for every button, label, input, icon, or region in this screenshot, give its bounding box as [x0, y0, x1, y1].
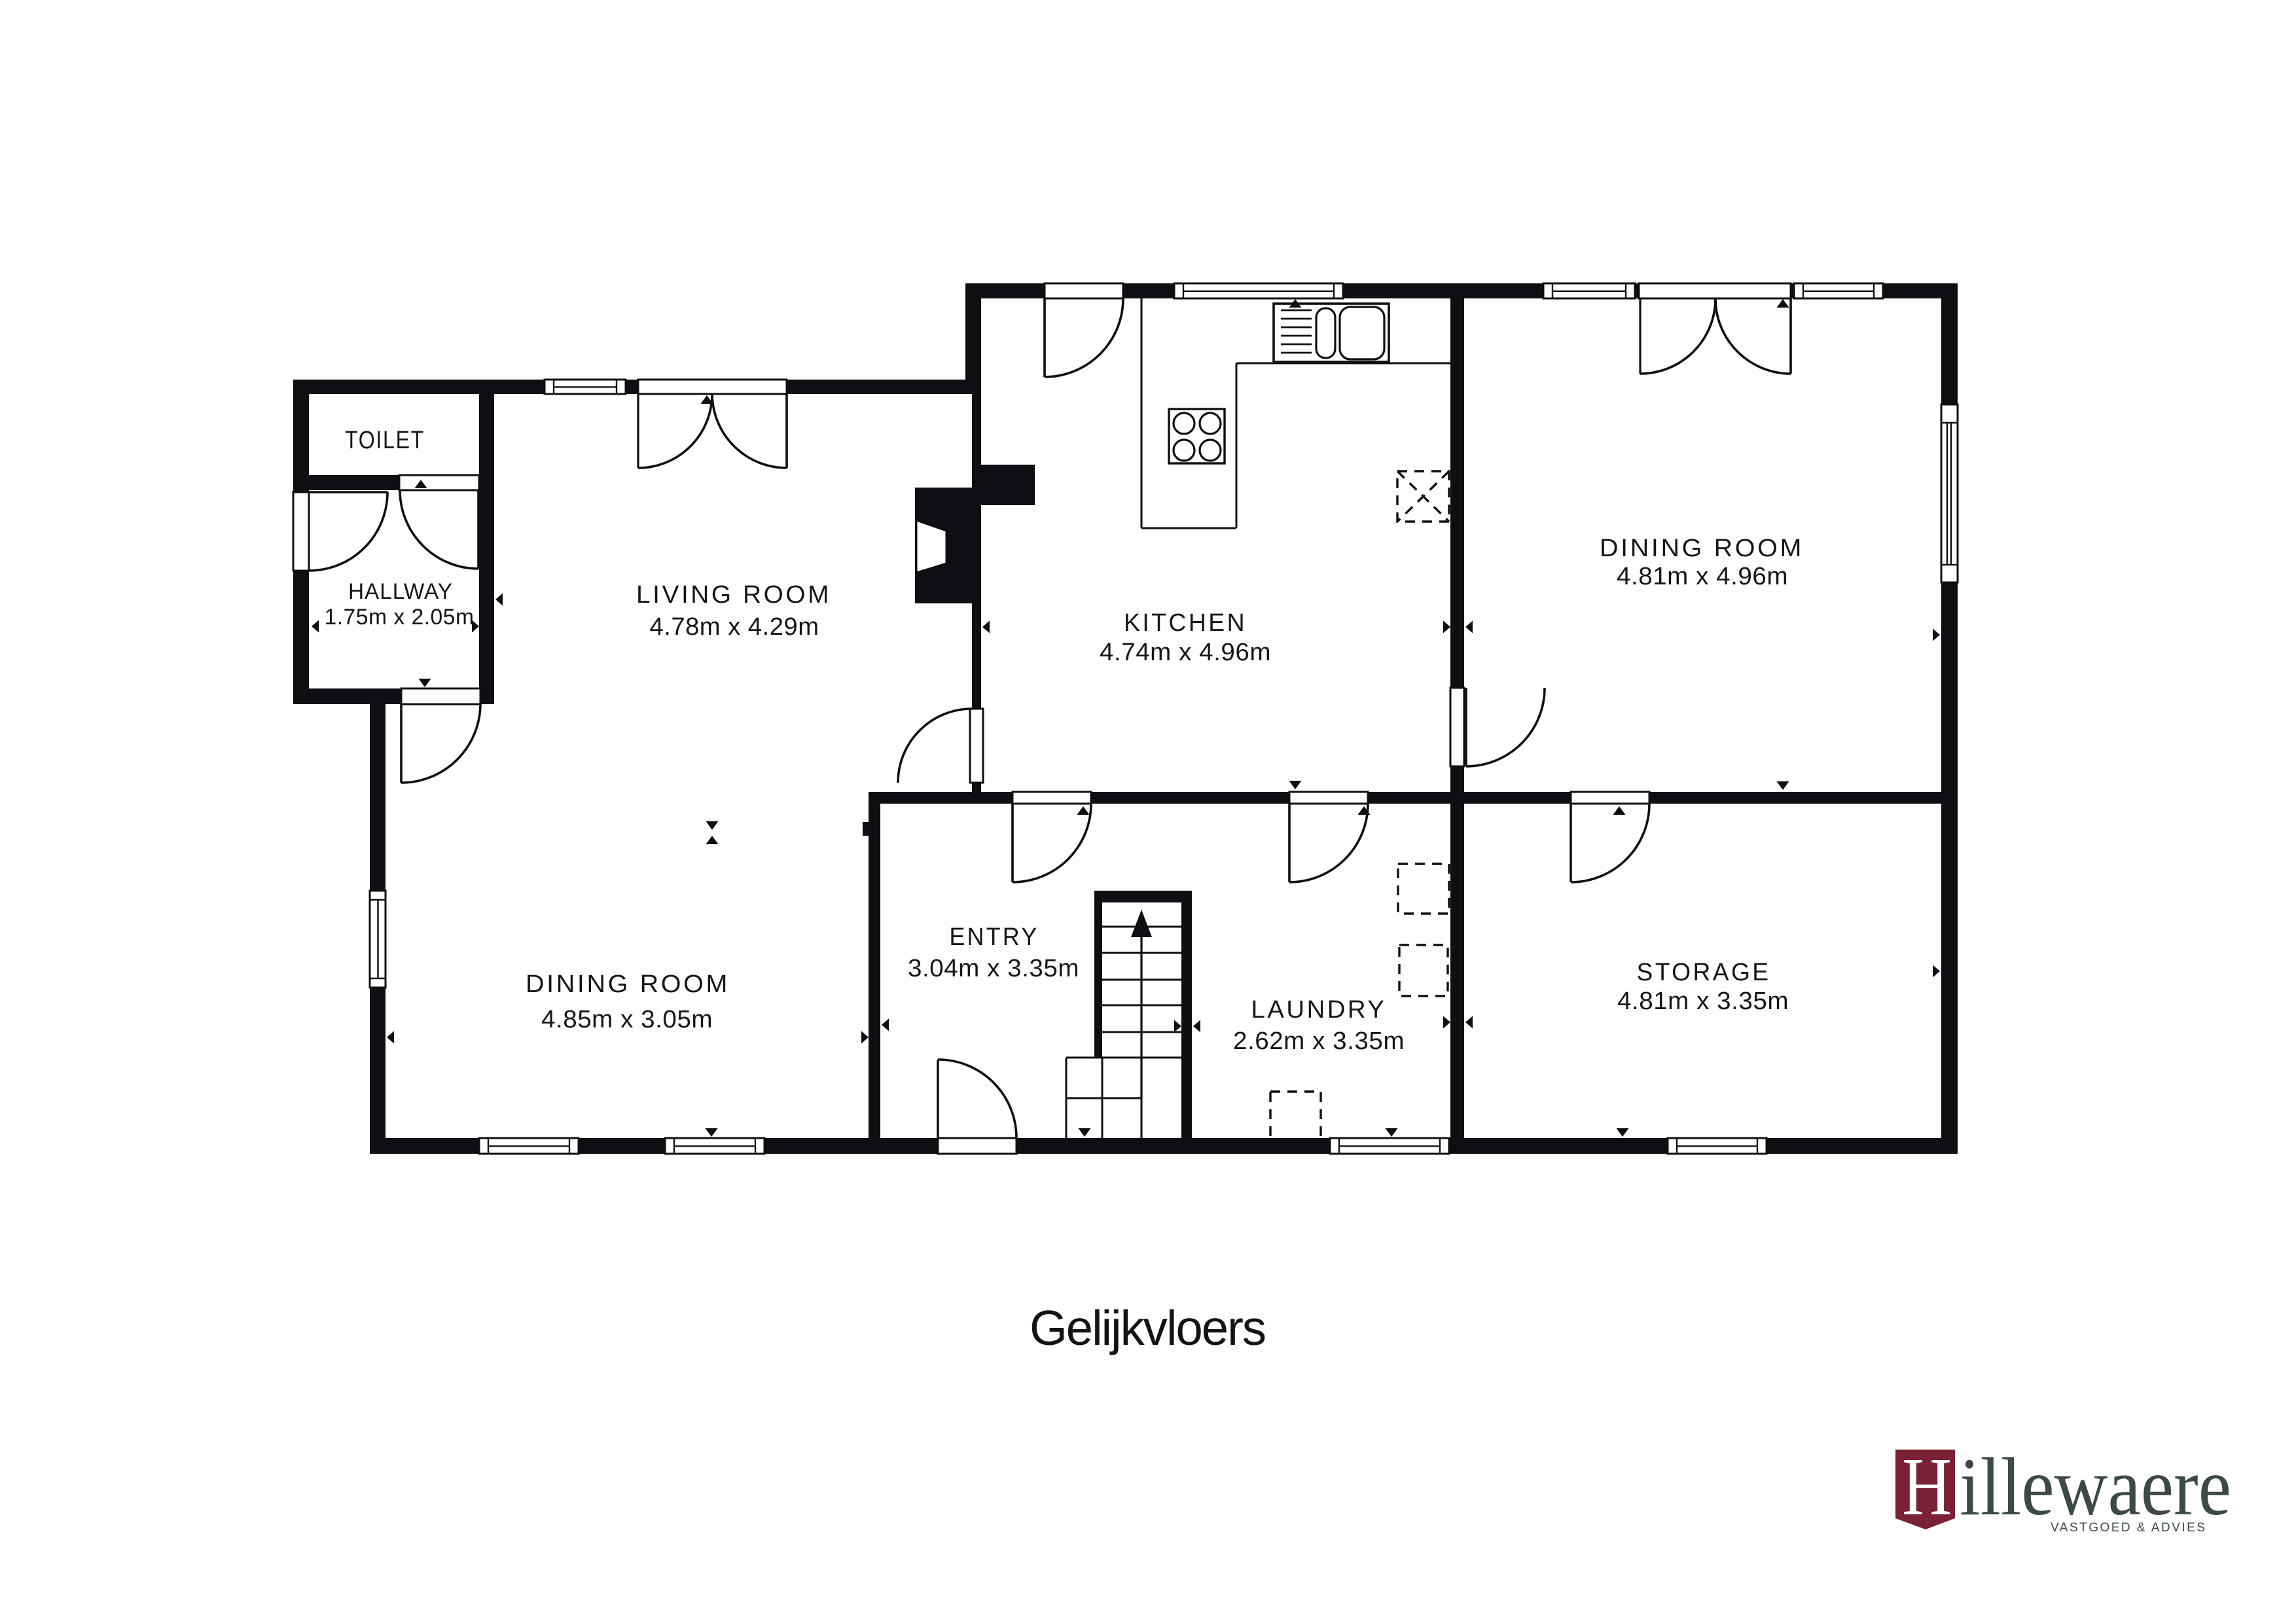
svg-text:4.74m x 4.96m: 4.74m x 4.96m: [1100, 639, 1271, 666]
svg-text:4.81m x 4.96m: 4.81m x 4.96m: [1617, 563, 1788, 590]
svg-text:LAUNDRY: LAUNDRY: [1251, 996, 1387, 1024]
svg-text:LIVING ROOM: LIVING ROOM: [636, 581, 831, 609]
svg-text:ENTRY: ENTRY: [950, 923, 1039, 951]
svg-text:DINING ROOM: DINING ROOM: [526, 971, 730, 998]
svg-text:2.62m x 3.35m: 2.62m x 3.35m: [1233, 1027, 1405, 1055]
svg-text:KITCHEN: KITCHEN: [1124, 609, 1247, 637]
svg-text:H: H: [1902, 1442, 1952, 1533]
svg-text:Gelijkvloers: Gelijkvloers: [1030, 1300, 1265, 1355]
svg-text:VASTGOED & ADVIES: VASTGOED & ADVIES: [2051, 1521, 2208, 1535]
svg-text:STORAGE: STORAGE: [1637, 959, 1771, 986]
svg-text:4.78m x 4.29m: 4.78m x 4.29m: [650, 613, 819, 641]
svg-text:illewaere: illewaere: [1960, 1442, 2231, 1533]
svg-text:4.85m x 3.05m: 4.85m x 3.05m: [541, 1006, 713, 1033]
svg-text:HALLWAY: HALLWAY: [348, 579, 453, 604]
svg-text:4.81m x 3.35m: 4.81m x 3.35m: [1617, 988, 1789, 1015]
svg-text:3.04m x 3.35m: 3.04m x 3.35m: [908, 955, 1079, 982]
svg-text:TOILET: TOILET: [345, 427, 425, 454]
svg-text:1.75m x 2.05m: 1.75m x 2.05m: [325, 605, 475, 630]
svg-text:DINING ROOM: DINING ROOM: [1600, 535, 1804, 562]
